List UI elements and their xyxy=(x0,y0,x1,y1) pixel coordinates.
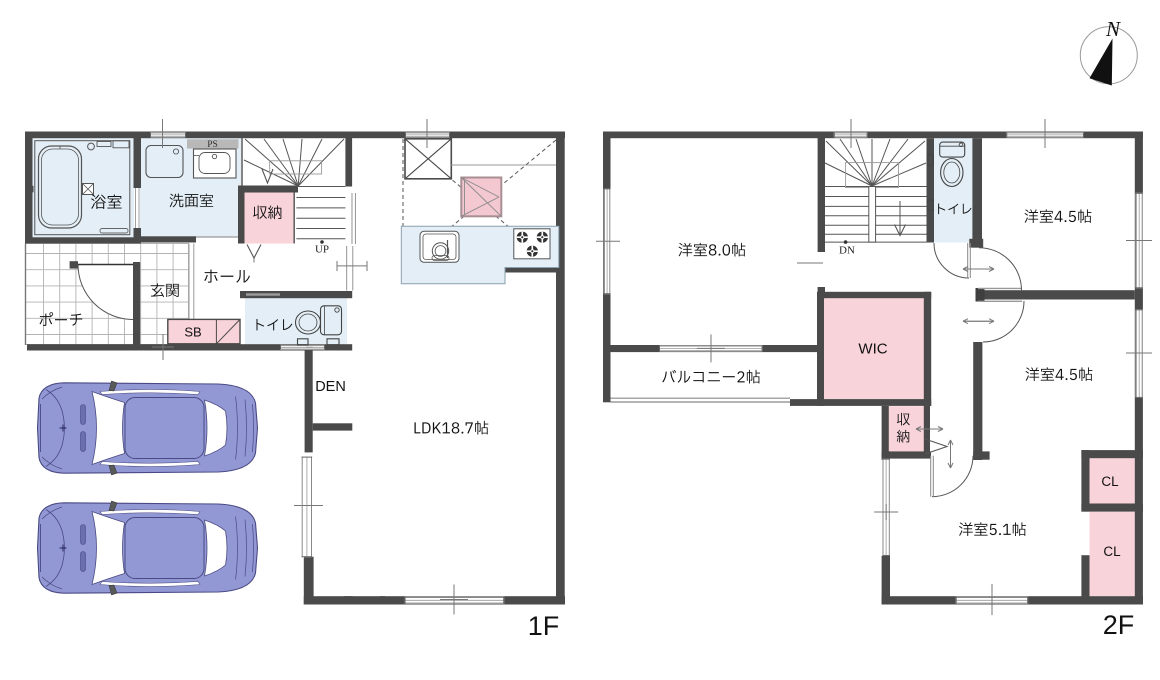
svg-text:CL: CL xyxy=(1101,474,1119,489)
svg-text:2F: 2F xyxy=(1103,610,1135,640)
svg-text:1F: 1F xyxy=(528,611,560,641)
svg-text:WIC: WIC xyxy=(858,341,887,358)
svg-text:DN: DN xyxy=(839,245,855,257)
svg-text:SB: SB xyxy=(184,325,201,340)
svg-text:N: N xyxy=(1105,17,1121,41)
svg-text:CL: CL xyxy=(1103,544,1121,559)
svg-text:DEN: DEN xyxy=(315,379,346,395)
svg-text:UP: UP xyxy=(315,244,329,256)
